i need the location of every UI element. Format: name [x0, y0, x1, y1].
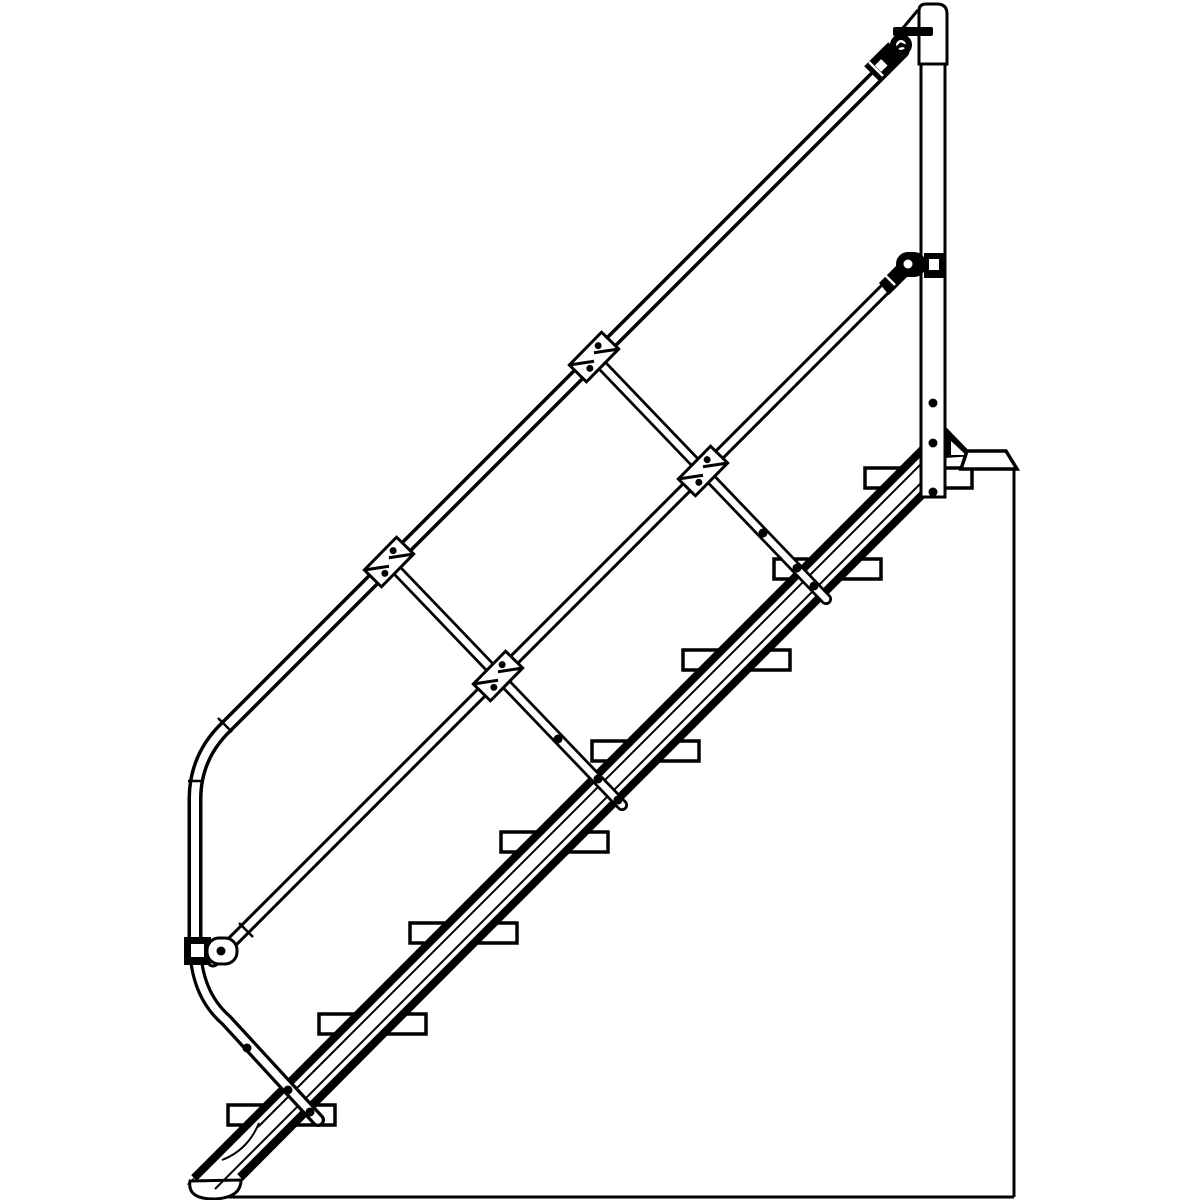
rivet: [929, 399, 938, 408]
pivot-center-dot: [899, 43, 904, 48]
stringer: [188, 426, 974, 1199]
rivets: [243, 399, 938, 1117]
rivet: [929, 439, 938, 448]
handrail-core: [195, 51, 902, 945]
stringer-foot: [190, 1180, 241, 1199]
lower-post-clamp: [184, 937, 237, 965]
knee-clamp-pin-hole: [904, 260, 913, 269]
rivet: [793, 564, 802, 573]
rivet: [929, 488, 938, 497]
rivet: [284, 1086, 293, 1095]
stringer-top-edge: [194, 427, 945, 1178]
rivet: [810, 582, 819, 591]
rivet: [614, 796, 623, 805]
rivet: [759, 529, 768, 538]
platform-bracket: [961, 451, 1017, 469]
rivet: [554, 735, 563, 744]
stringer-inner-line: [215, 474, 930, 1189]
handrail-end-post-outline: [195, 945, 318, 1120]
lower-clamp-plate-hole: [191, 944, 204, 957]
rivet: [594, 775, 603, 784]
knee-clamp-plate-hole: [929, 259, 939, 270]
stair-technical-drawing: [0, 0, 1200, 1200]
baluster-rail-clamps: [364, 332, 727, 701]
handrail-outline: [195, 51, 902, 945]
drawing-canvas: [0, 0, 1200, 1200]
jaw-seam-gaps: [869, 62, 895, 285]
lower-clamp-pin: [217, 947, 226, 956]
rivet: [306, 1108, 315, 1117]
handrail-pivot: [893, 37, 909, 53]
top-post-assembly: [864, 4, 947, 497]
rivet: [243, 1044, 252, 1053]
